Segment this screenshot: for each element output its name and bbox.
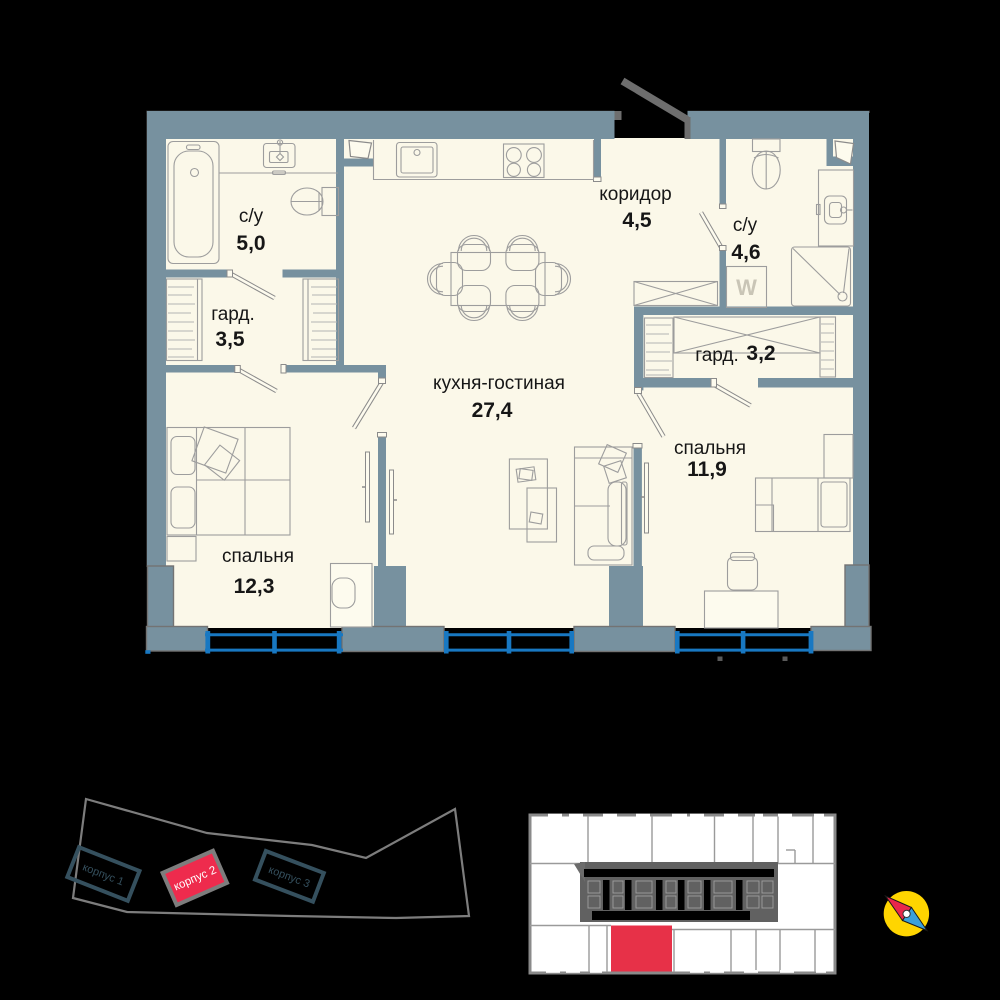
svg-text:27,4: 27,4: [472, 399, 513, 422]
svg-text:4,5: 4,5: [622, 209, 652, 232]
svg-text:W: W: [736, 275, 757, 300]
svg-text:4,6: 4,6: [731, 241, 760, 264]
svg-text:кухня-гостиная: кухня-гостиная: [433, 373, 565, 394]
svg-text:3,2: 3,2: [746, 342, 775, 365]
svg-text:11,9: 11,9: [687, 458, 727, 481]
svg-text:с/у: с/у: [239, 206, 264, 227]
svg-text:с/у: с/у: [733, 215, 758, 236]
svg-text:5,0: 5,0: [236, 232, 265, 255]
svg-text:спальня: спальня: [222, 546, 294, 567]
svg-text:гард.: гард.: [211, 304, 255, 325]
svg-text:гард.: гард.: [695, 345, 739, 366]
svg-text:спальня: спальня: [674, 438, 746, 459]
svg-text:12,3: 12,3: [234, 575, 275, 598]
svg-text:коридор: коридор: [599, 184, 672, 205]
svg-text:3,5: 3,5: [215, 328, 245, 351]
